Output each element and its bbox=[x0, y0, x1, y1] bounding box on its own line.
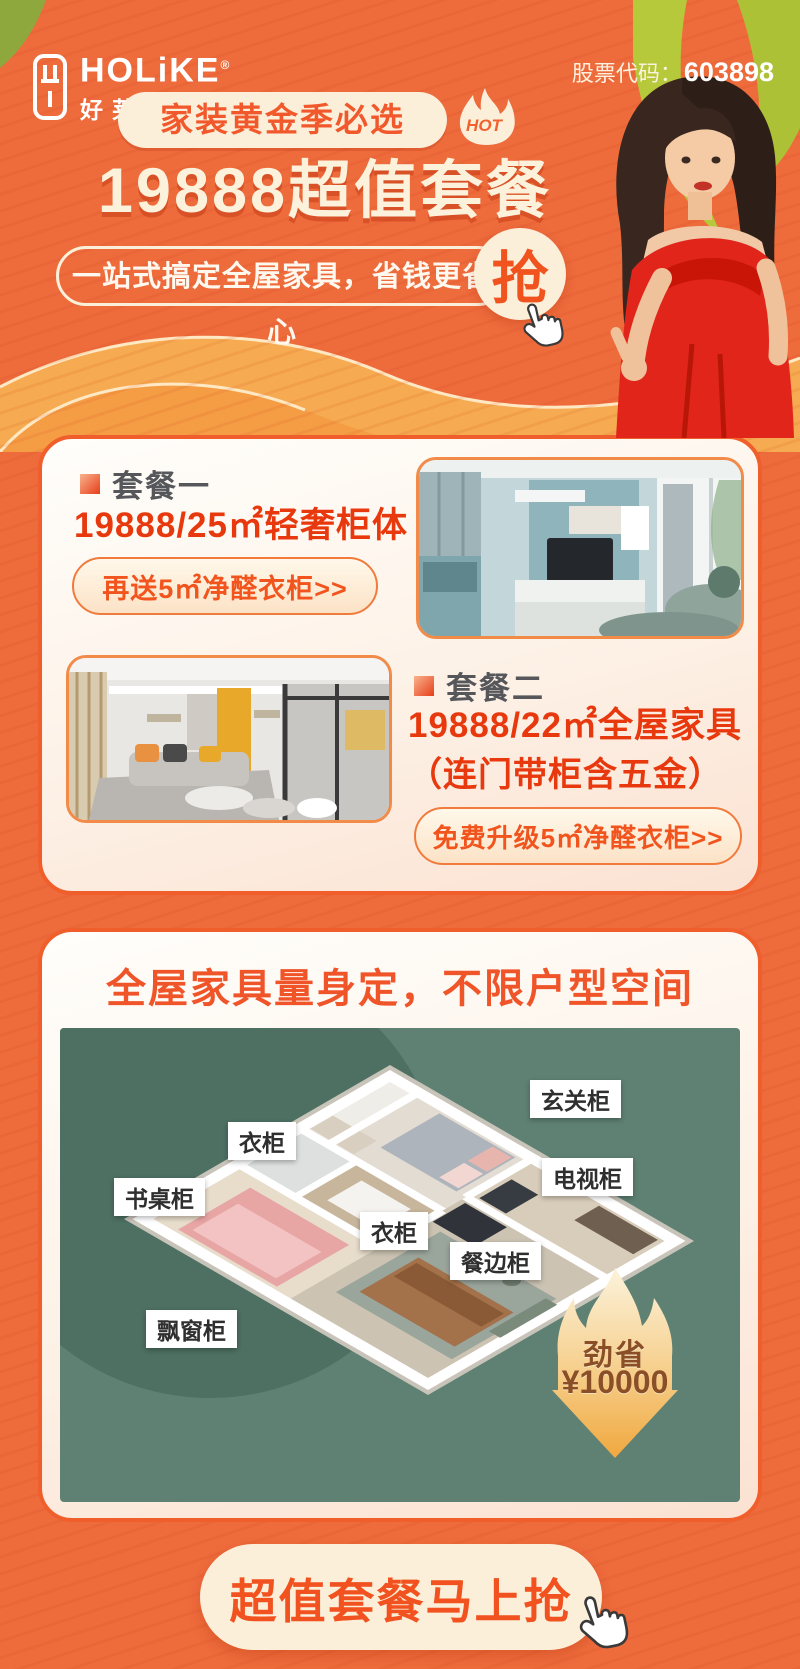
floorplan-label-shuzhuogui: 书桌柜 bbox=[114, 1178, 205, 1216]
svg-text:HOT: HOT bbox=[466, 116, 504, 135]
hero-subtitle: 一站式搞定全屋家具，省钱更省心 bbox=[56, 246, 508, 306]
bullet-square-icon bbox=[80, 474, 100, 494]
cta-button[interactable]: 超值套餐马上抢 bbox=[200, 1544, 602, 1650]
hero-title: 19888超值套餐 bbox=[36, 140, 614, 231]
savings-amount: ¥10000 bbox=[552, 1364, 678, 1401]
hot-flame-icon: HOT bbox=[452, 86, 516, 146]
package-two-price-note: （连门带柜含五金） bbox=[408, 747, 723, 796]
room-photo-living-gray bbox=[66, 655, 392, 823]
room-photo-living-blue bbox=[416, 457, 744, 639]
package-two-price: 19888/22㎡全屋家具 bbox=[408, 697, 742, 748]
package-one-bonus-button[interactable]: 再送5㎡净醛衣柜>> bbox=[72, 557, 378, 615]
floorplan-card: 全屋家具量身定，不限户型空间 bbox=[38, 928, 762, 1522]
floorplan-label-yigui-1: 衣柜 bbox=[228, 1122, 296, 1160]
package-one-price: 19888/25㎡轻奢柜体 bbox=[74, 497, 408, 548]
promo-page: HOLiKE® 好莱客 股票代码： 603898 家装黄金季必选 HOT 198… bbox=[0, 0, 800, 1669]
registered-mark: ® bbox=[220, 58, 231, 72]
stock-code-label: 股票代码： bbox=[572, 56, 682, 88]
floorplan-label-xuanguangui: 玄关柜 bbox=[530, 1080, 621, 1118]
holike-logo-icon bbox=[32, 53, 68, 121]
model-photo bbox=[564, 64, 800, 438]
bullet-square-icon bbox=[414, 676, 434, 696]
hand-cursor-icon bbox=[507, 285, 576, 354]
floorplan-title: 全屋家具量身定，不限户型空间 bbox=[42, 956, 758, 1014]
savings-badge: 劲省 ¥10000 bbox=[552, 1266, 678, 1462]
floorplan-label-canbiangui: 餐边柜 bbox=[450, 1242, 541, 1280]
packages-card: 套餐一 19888/25㎡轻奢柜体 再送5㎡净醛衣柜>> bbox=[38, 435, 762, 895]
stock-code: 股票代码： 603898 bbox=[572, 56, 774, 88]
floorplan-label-piaochuanggui: 飘窗柜 bbox=[146, 1310, 237, 1348]
package-two-upgrade-button[interactable]: 免费升级5㎡净醛衣柜>> bbox=[414, 807, 742, 865]
floorplan-image: 玄关柜 衣柜 电视柜 书桌柜 衣柜 餐边柜 飘窗柜 bbox=[60, 1028, 740, 1502]
floorplan-label-yigui-2: 衣柜 bbox=[360, 1212, 428, 1250]
floorplan-label-dianshigui: 电视柜 bbox=[542, 1158, 633, 1196]
brand-name: HOLiKE® bbox=[80, 48, 231, 87]
stock-code-value: 603898 bbox=[684, 57, 774, 88]
hand-cursor-icon bbox=[559, 1573, 642, 1656]
